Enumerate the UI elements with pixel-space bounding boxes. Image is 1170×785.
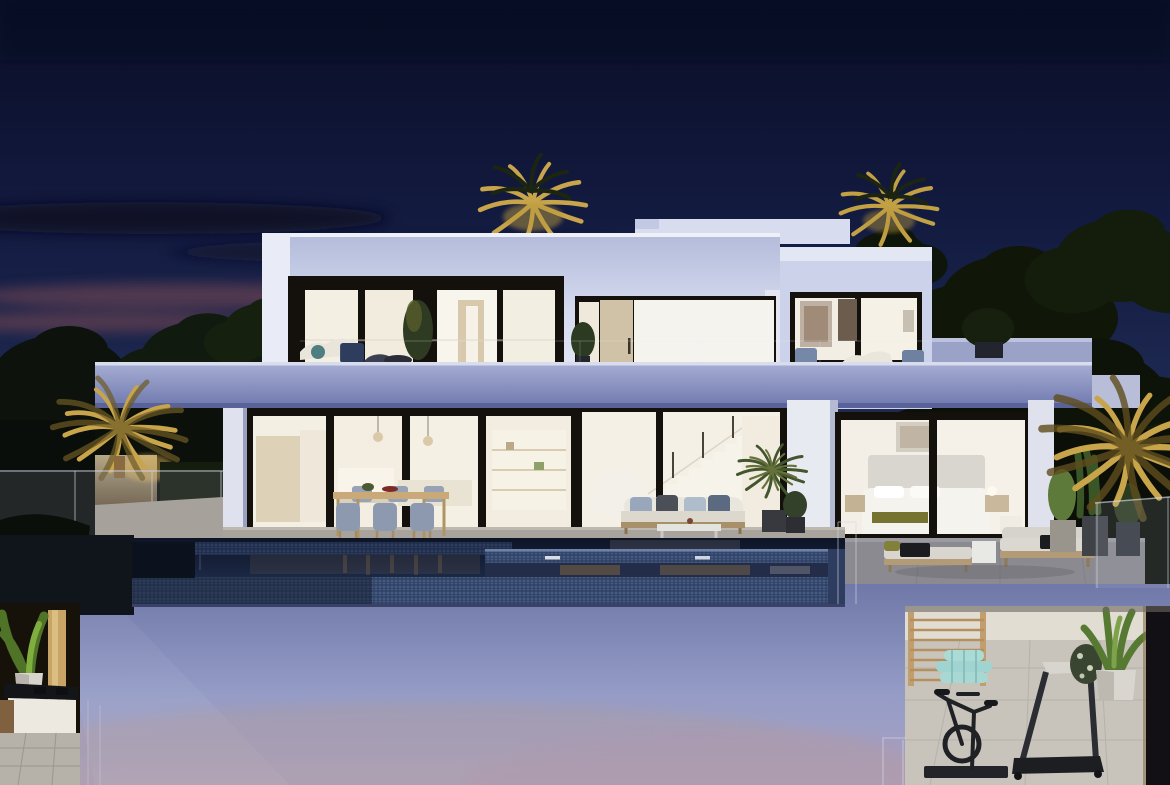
- ledge-reflection-strip: [485, 563, 828, 577]
- bedroom-mullion: [929, 412, 937, 542]
- panel-handle: [628, 338, 631, 354]
- nightstand-right: [985, 495, 1009, 512]
- overflow-slot-2: [695, 556, 710, 560]
- railing-glass-panel: [1095, 496, 1170, 588]
- pendant-lamp-1: [373, 432, 383, 442]
- navy-cushion-chair: [340, 343, 364, 363]
- lounger-1-base: [884, 559, 972, 565]
- slab-bottom-shadow: [95, 403, 1092, 408]
- red-bowl: [382, 486, 398, 492]
- table-plant: [362, 483, 374, 491]
- foam-rollers: [936, 650, 992, 683]
- nightstand-left: [845, 495, 865, 512]
- teal-pillow: [311, 345, 325, 359]
- lounger-side-table: [972, 541, 996, 563]
- bike-mat: [924, 766, 1008, 778]
- main-roof-edge: [262, 233, 780, 237]
- plant-pot-dark: [762, 510, 786, 532]
- table-decor: [687, 518, 693, 524]
- lounger-1-towel: [900, 543, 930, 557]
- lounger-1-olive-pillow: [884, 541, 900, 551]
- ledge-highlight: [485, 549, 828, 552]
- upper-beige-panel: [600, 300, 633, 366]
- upper-pane-4: [503, 290, 555, 362]
- lounger-2-base: [1000, 551, 1095, 558]
- kitchen-corridor: [300, 430, 326, 522]
- pool-right-end: [828, 549, 845, 607]
- pendant-lamp-2: [423, 436, 433, 446]
- bike-seat: [984, 700, 998, 706]
- slab-face: [95, 362, 1092, 408]
- upper-white-pane: [634, 300, 774, 366]
- small-plant: [783, 491, 807, 519]
- right-parapet-edge: [932, 338, 1092, 342]
- pool-left-corner: [132, 542, 195, 578]
- pillar-edge-light: [1143, 606, 1146, 785]
- overflow-slot-1: [545, 556, 560, 560]
- olive-throw: [872, 512, 928, 523]
- tile-wall-left-shade: [132, 577, 372, 607]
- terrace-slab: [95, 362, 1140, 408]
- sofa-seat: [621, 511, 745, 523]
- scene-canvas: [0, 0, 1170, 785]
- roof-bulkhead-step: [635, 219, 659, 229]
- lounger-shadow: [895, 565, 1075, 579]
- coffee-table-top: [657, 524, 721, 531]
- games-room-floor: [0, 733, 80, 785]
- dining-table-top: [333, 492, 449, 499]
- games-table-base: [8, 698, 76, 733]
- bedside-lamp: [987, 486, 997, 496]
- art-canvas-2: [838, 299, 857, 341]
- treadmill-deck: [1012, 756, 1104, 774]
- slab-top-highlight: [95, 362, 1092, 366]
- recessed-wing-fascia: [780, 247, 932, 261]
- fern-plant: [1048, 469, 1076, 521]
- infinity-pool: [132, 538, 845, 607]
- stone-pot: [1050, 520, 1076, 552]
- terrace-tree-planter: [975, 342, 1003, 358]
- bike-handlebar: [934, 689, 950, 695]
- vignette: [0, 0, 1170, 60]
- gym-soffit-shadow: [905, 606, 1170, 612]
- art-canvas-3: [903, 310, 914, 332]
- kitchen-cabinets: [256, 436, 300, 522]
- dark-pillar: [1146, 606, 1170, 785]
- home-gym: [882, 606, 1170, 785]
- waterline-tile-band: [195, 542, 512, 555]
- bed-pillow-1: [874, 486, 904, 498]
- villa-render: [0, 0, 1170, 785]
- wood-cabinet: [0, 700, 14, 733]
- small-plant-pot: [786, 517, 805, 533]
- terrace-shrub: [403, 300, 433, 360]
